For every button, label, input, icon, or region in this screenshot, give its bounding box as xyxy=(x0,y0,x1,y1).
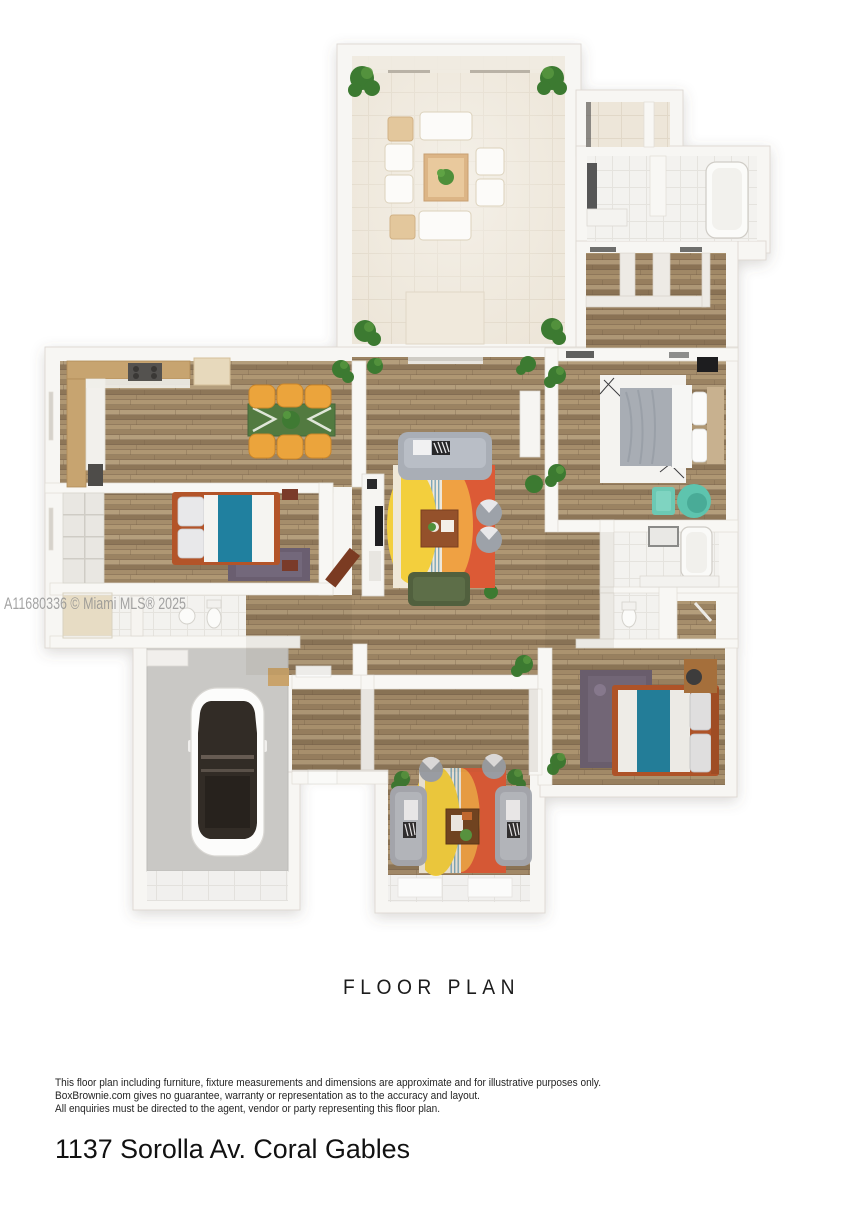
svg-text:1137 Sorolla Av. Coral Gables: 1137 Sorolla Av. Coral Gables xyxy=(55,1134,410,1164)
svg-text:BoxBrownie.com gives no guaran: BoxBrownie.com gives no guarantee, warra… xyxy=(55,1090,480,1102)
svg-text:This floor plan including furn: This floor plan including furniture, fix… xyxy=(55,1077,601,1089)
svg-text:A11680336 © Miami MLS® 2025: A11680336 © Miami MLS® 2025 xyxy=(4,594,186,613)
svg-text:All enquiries must be directed: All enquiries must be directed to the ag… xyxy=(55,1103,440,1115)
svg-text:FLOOR PLAN: FLOOR PLAN xyxy=(343,976,520,999)
